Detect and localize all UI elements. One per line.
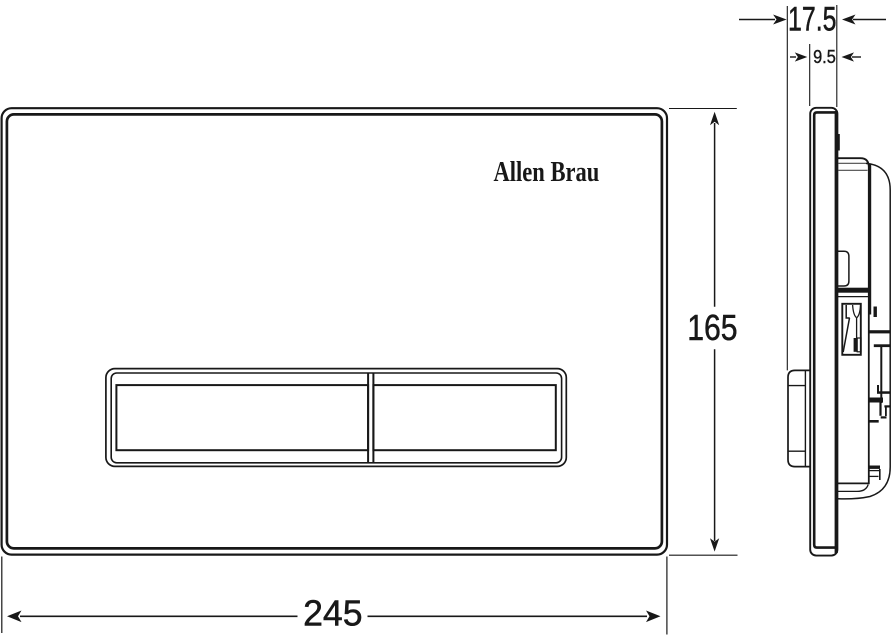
svg-text:165: 165 bbox=[687, 307, 737, 348]
svg-text:17.5: 17.5 bbox=[788, 1, 837, 39]
svg-text:245: 245 bbox=[303, 593, 363, 634]
svg-text:Allen Brau: Allen Brau bbox=[494, 156, 600, 188]
svg-text:9.5: 9.5 bbox=[813, 47, 836, 67]
